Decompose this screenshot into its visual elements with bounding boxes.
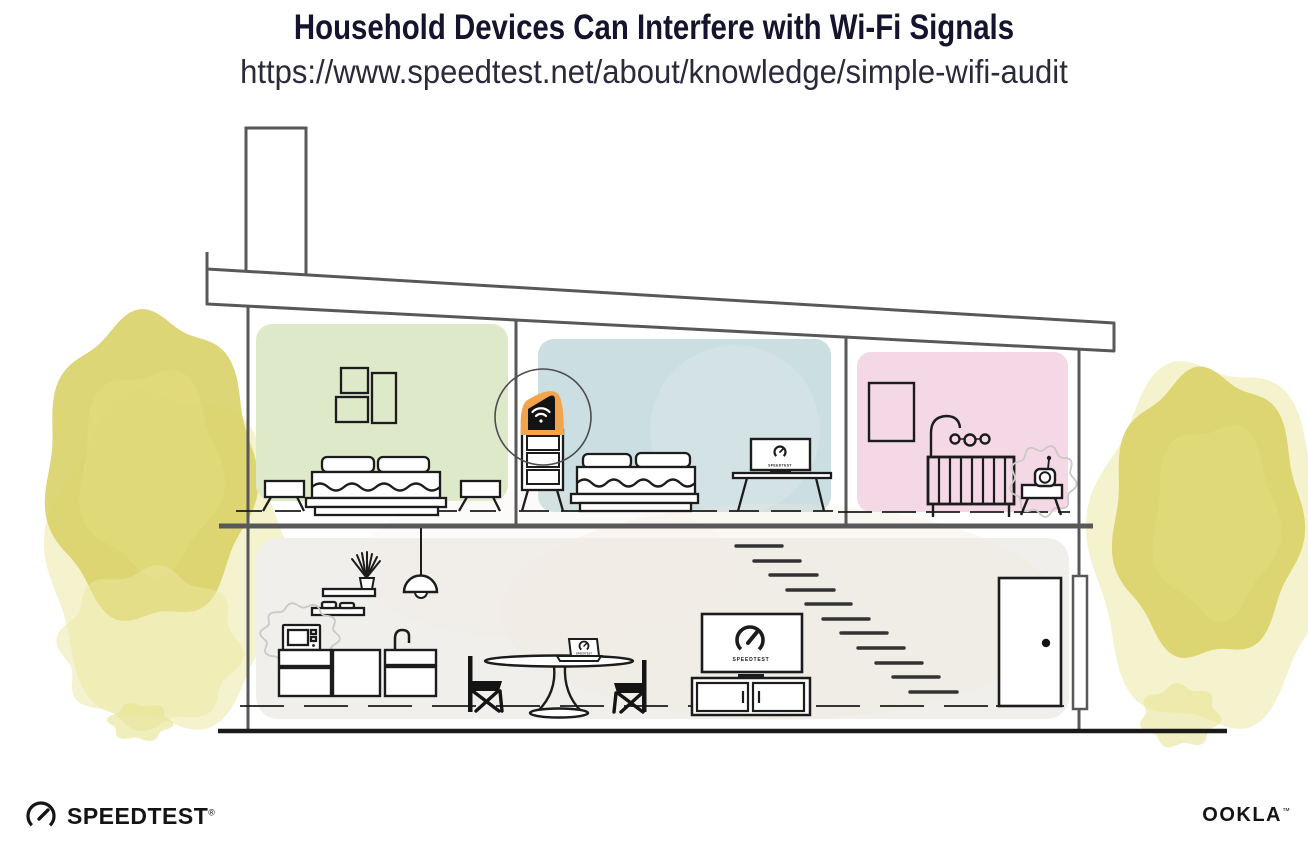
bed-platform	[306, 498, 446, 507]
ookla-logo: OOKLA™	[1202, 804, 1290, 827]
foliage-right	[1086, 361, 1308, 747]
desk-monitor: SPEEDTEST	[751, 439, 810, 474]
bed-base	[315, 507, 438, 515]
monitor-stand	[770, 470, 791, 474]
front-door	[996, 578, 1064, 706]
infographic-page: { "header": { "title": "Household Device…	[0, 0, 1308, 861]
pillow	[636, 453, 690, 467]
bed-base	[580, 503, 691, 511]
tv-console	[692, 678, 810, 715]
ookla-trade-mark: ™	[1282, 806, 1290, 815]
desk-screen-label: SPEEDTEST	[768, 464, 792, 468]
speedtest-gauge-icon	[24, 799, 58, 833]
speedtest-logo: SPEEDTEST®	[24, 799, 215, 833]
tv-screen-label: SPEEDTEST	[733, 657, 770, 663]
dresser-drawers	[527, 436, 559, 484]
speedtest-reg-mark: ®	[208, 807, 215, 817]
house-illustration: SPEEDTEST	[0, 0, 1308, 861]
chimney	[246, 128, 306, 275]
tv-stand	[738, 674, 764, 677]
pillow	[378, 457, 429, 472]
bed-platform	[571, 494, 698, 503]
speedtest-wordmark: SPEEDTEST®	[67, 803, 215, 830]
door-knob	[1042, 639, 1050, 647]
ookla-wordmark: OOKLA	[1202, 804, 1282, 826]
downspout	[1073, 576, 1087, 709]
microwave	[283, 625, 320, 650]
tv: SPEEDTEST	[702, 614, 802, 677]
pillow	[322, 457, 374, 472]
